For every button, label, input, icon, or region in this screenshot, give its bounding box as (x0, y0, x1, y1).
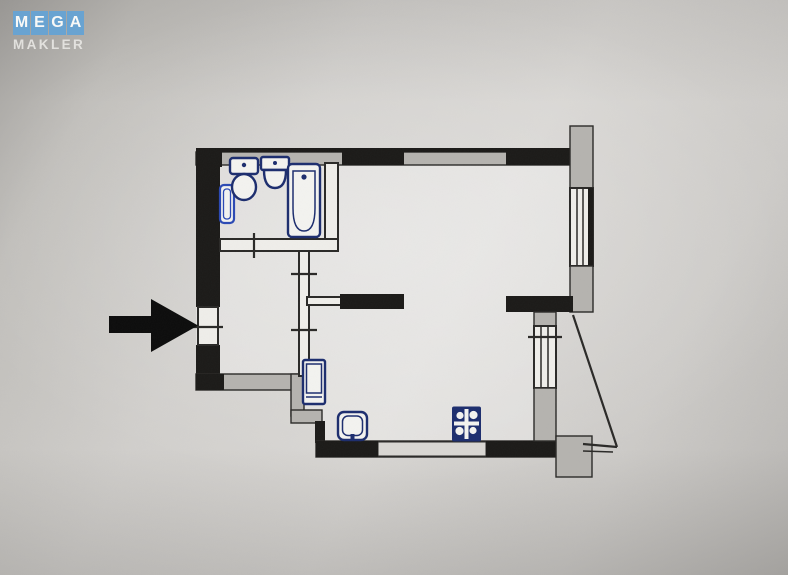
brand-letter-square-g: G (49, 11, 66, 35)
brand-watermark: M E G A MAKLER (13, 11, 85, 52)
photo-background: M E G A MAKLER (0, 0, 788, 575)
floorplan-drawing (0, 0, 788, 575)
brand-letter-square-m: M (13, 11, 30, 35)
brand-subtitle: MAKLER (13, 37, 85, 52)
brand-letter-square-e: E (31, 11, 48, 35)
brand-letter-square-a: A (67, 11, 84, 35)
brand-logo: M E G A (13, 11, 85, 35)
photo-noise-overlay (0, 0, 788, 575)
